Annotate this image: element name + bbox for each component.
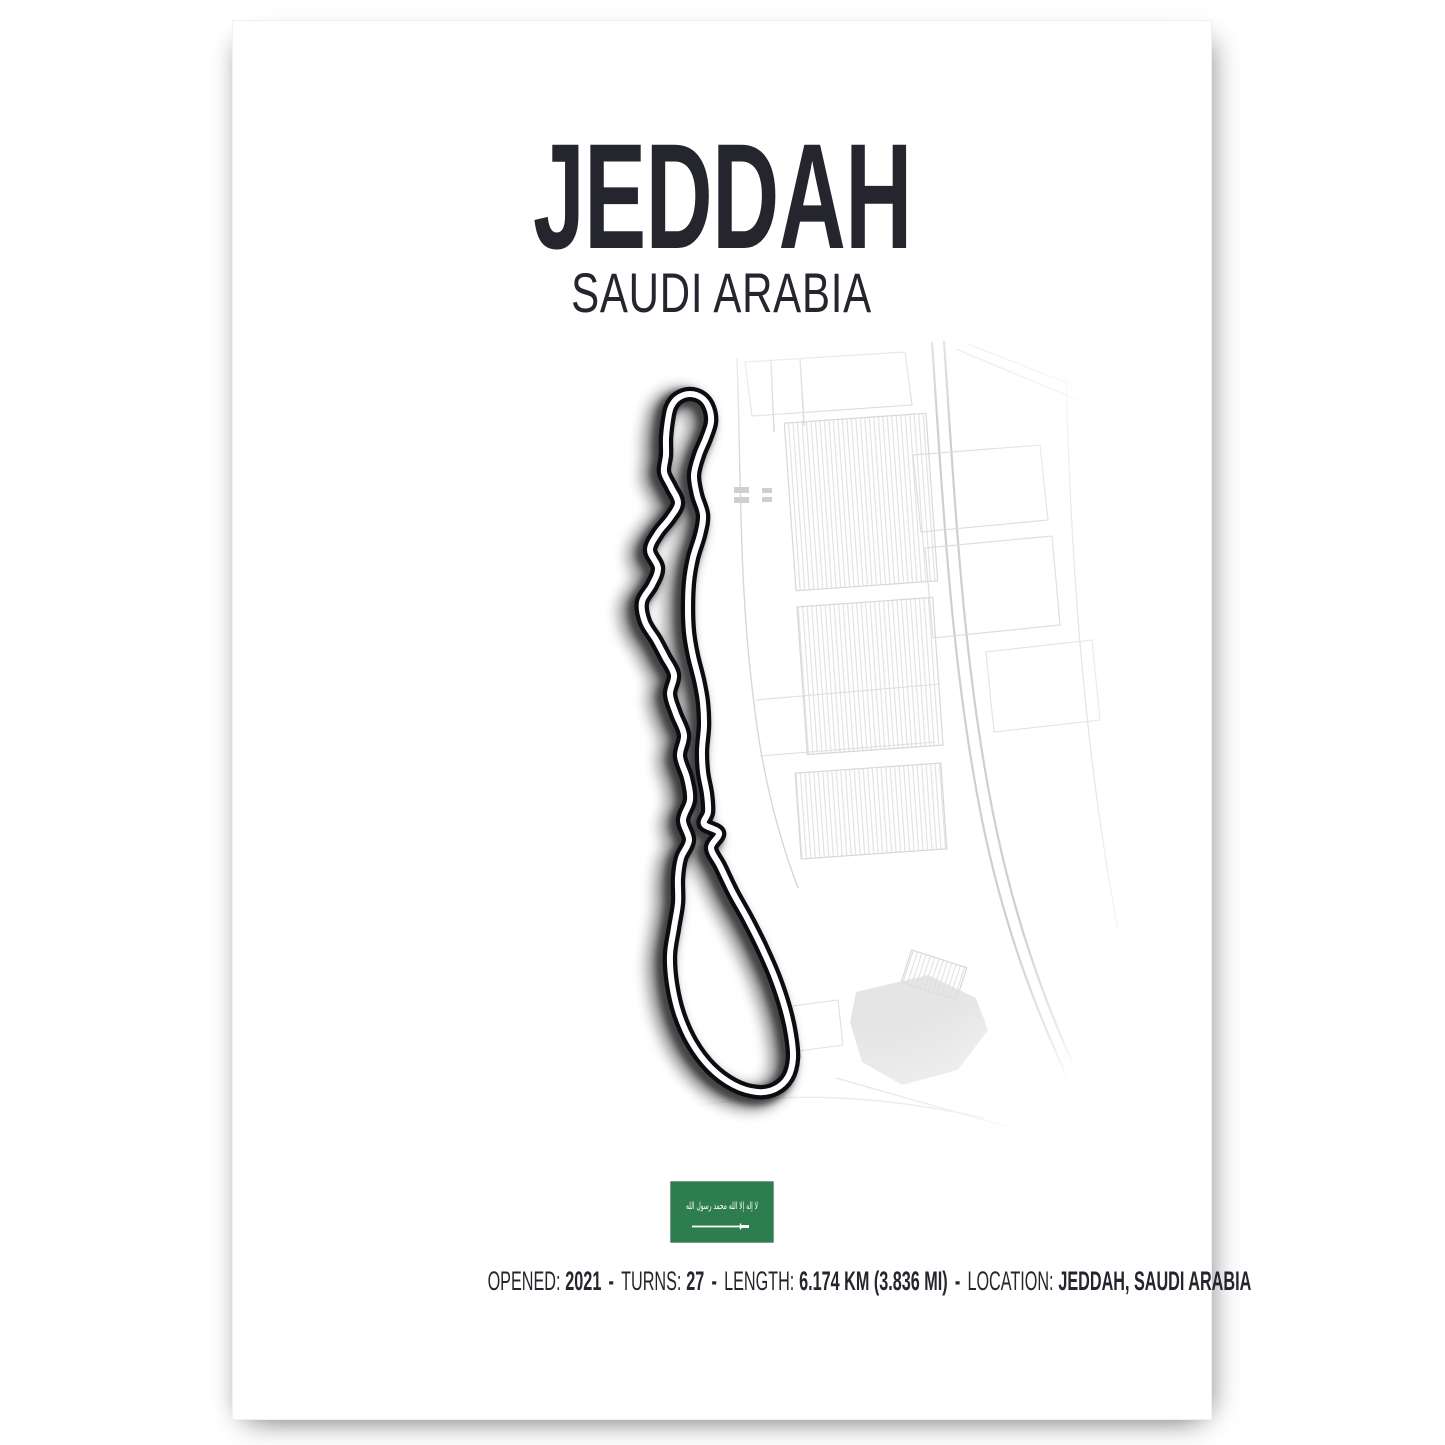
stat-label-turns: TURNS:: [621, 1266, 681, 1296]
circuit-stats-line: OPENED:2021-TURNS:27-LENGTH:6.174 KM (3.…: [488, 1266, 1252, 1297]
flag-field: [671, 1182, 774, 1243]
saudi-arabia-flag-graphic: لا إله إلا الله محمد رسول الله: [670, 1181, 774, 1243]
stat-separator: -: [955, 1266, 960, 1296]
stat-value-location: JEDDAH, SAUDI ARABIA: [1058, 1266, 1251, 1296]
stat-label-location: LOCATION:: [967, 1266, 1053, 1296]
stat-value-opened: 2021: [565, 1266, 601, 1296]
flag-shahada-text: لا إله إلا الله محمد رسول الله: [686, 1201, 758, 1212]
stat-separator: -: [609, 1266, 614, 1296]
stat-value-length: 6.174 KM (3.836 MI): [799, 1266, 948, 1296]
stat-label-length: LENGTH:: [724, 1266, 794, 1296]
stat-label-opened: OPENED:: [488, 1266, 561, 1296]
stat-value-turns: 27: [686, 1266, 704, 1296]
circuit-stats: OPENED:2021-TURNS:27-LENGTH:6.174 KM (3.…: [233, 1266, 1211, 1297]
circuit-name: JEDDAH: [533, 121, 912, 271]
poster-sheet: JEDDAH SAUDI ARABIA لا إله إلا الله محمد…: [232, 20, 1212, 1420]
page-background: JEDDAH SAUDI ARABIA لا إله إلا الله محمد…: [0, 0, 1445, 1445]
stat-separator: -: [711, 1266, 716, 1296]
saudi-arabia-flag: لا إله إلا الله محمد رسول الله: [670, 1181, 774, 1243]
page-title: JEDDAH: [233, 121, 1211, 271]
circuit-country: SAUDI ARABIA: [233, 265, 1211, 321]
